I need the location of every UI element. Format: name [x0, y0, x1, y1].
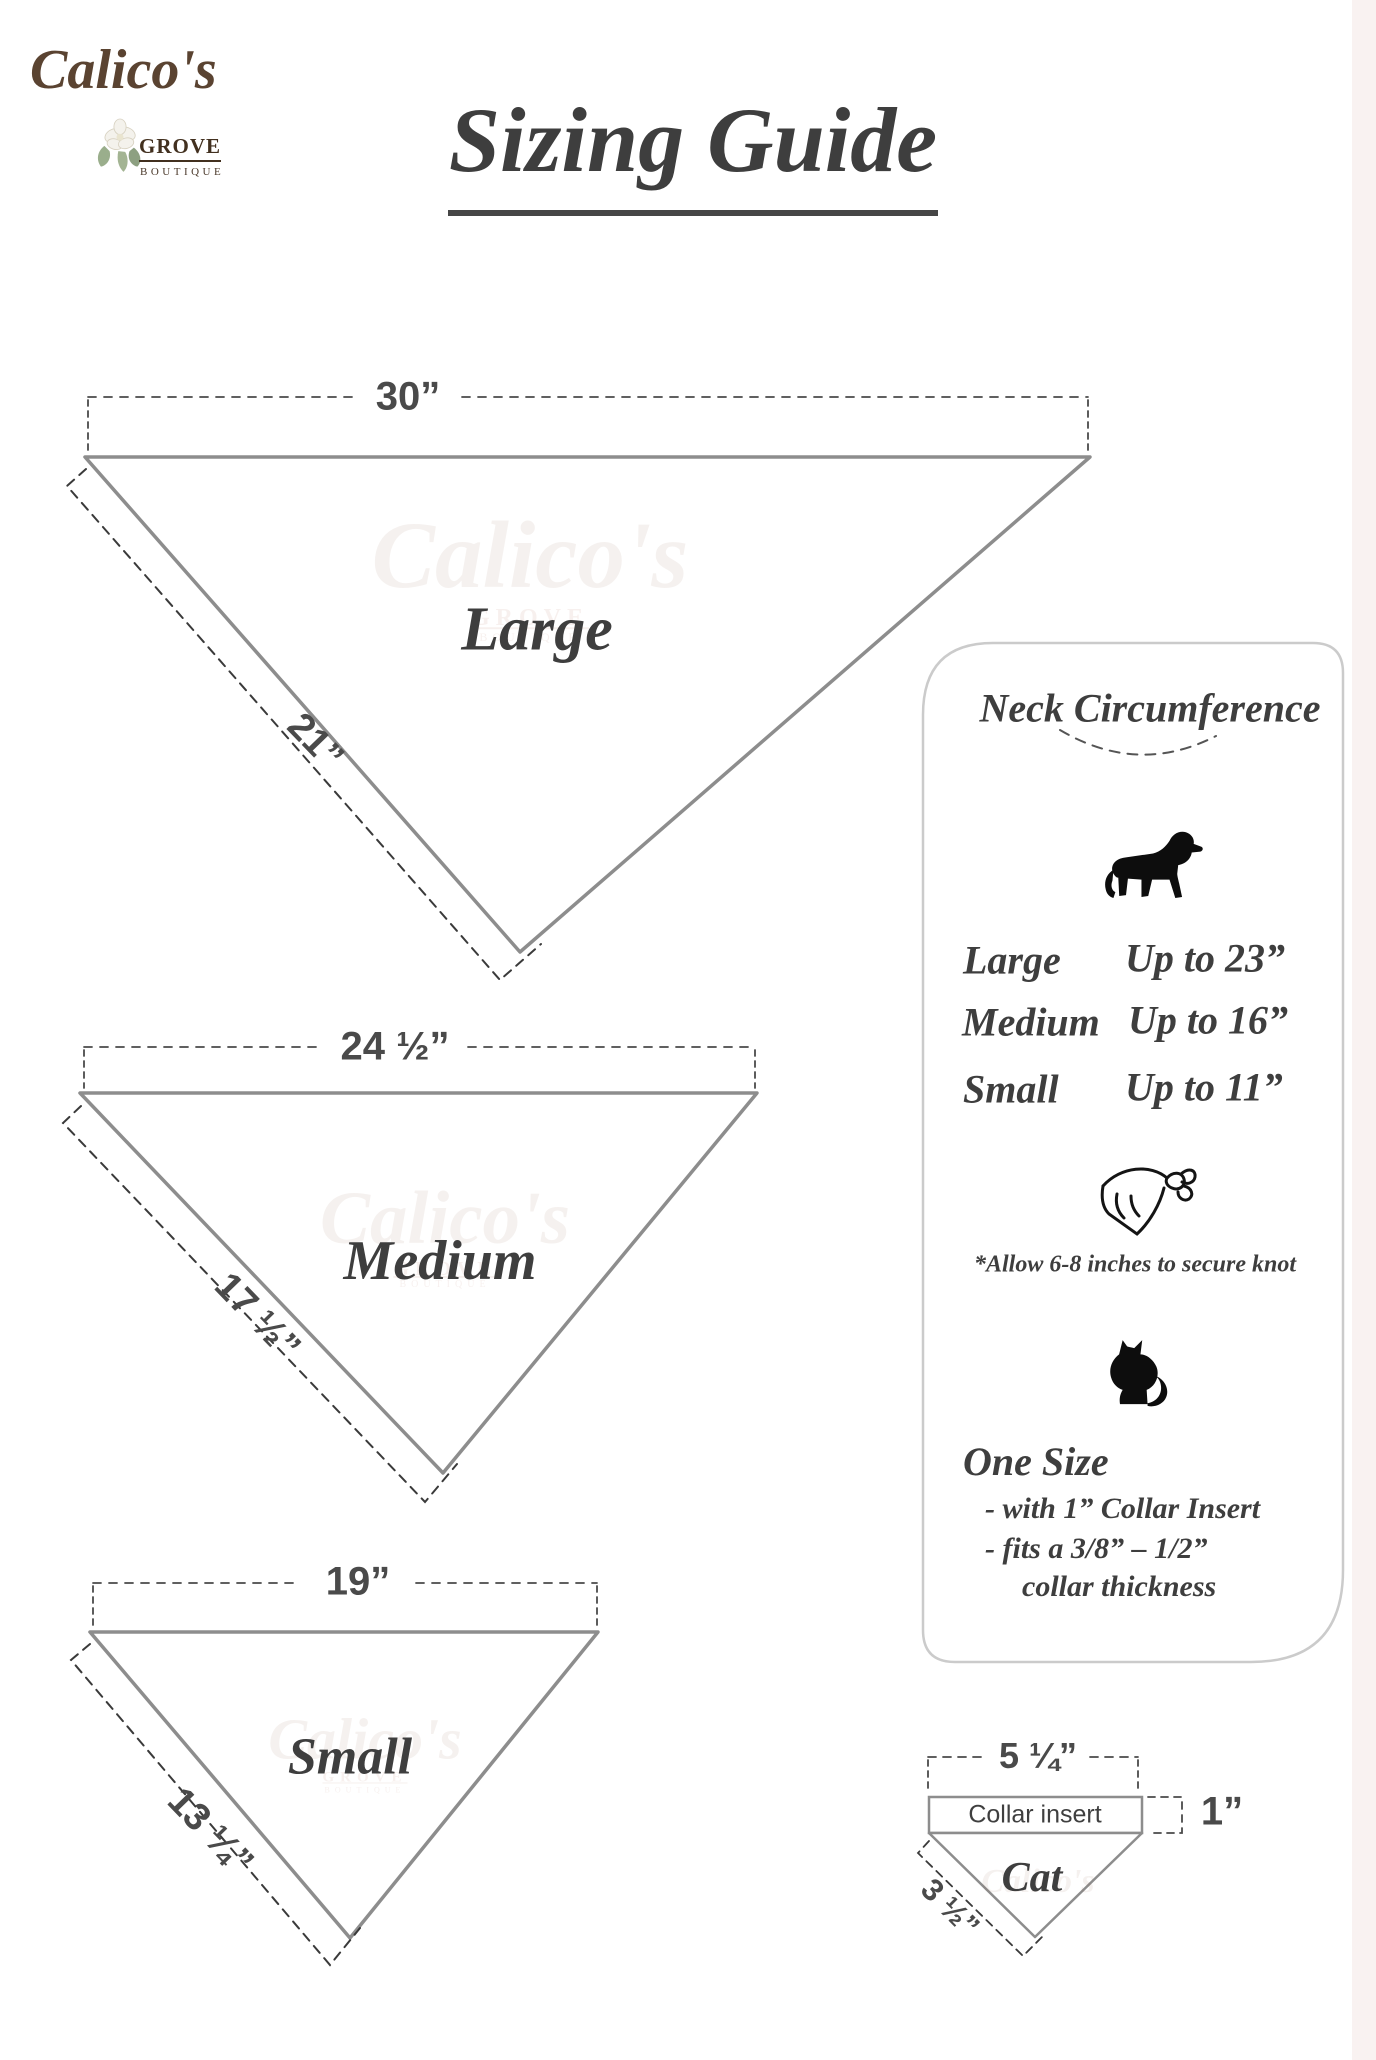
- panel-row-small-size: Small: [963, 1066, 1059, 1113]
- one-size-line3: collar thickness: [1022, 1570, 1216, 1604]
- medium-width-dimension: 24 ½”: [341, 1025, 450, 1070]
- bandana-icon: [1093, 1156, 1199, 1244]
- brand-grove-label: GROVE: [139, 134, 221, 162]
- one-size-line1: - with 1” Collar Insert: [985, 1492, 1260, 1526]
- panel-row-small-value: Up to 11”: [1125, 1064, 1283, 1111]
- small-size-label: Small: [288, 1728, 412, 1787]
- panel-row-large-value: Up to 23”: [1125, 935, 1285, 982]
- collar-insert-label: Collar insert: [968, 1801, 1101, 1830]
- brand-boutique-label: BOUTIQUE: [140, 166, 224, 178]
- sizing-guide-page: Calico's GROVE BOUTIQUE Calico's GROVE B…: [0, 0, 1376, 2060]
- large-size-label: Large: [461, 595, 613, 666]
- panel-row-large-size: Large: [963, 937, 1061, 984]
- knot-allowance-note: *Allow 6-8 inches to secure knot: [974, 1252, 1296, 1279]
- panel-row-medium-value: Up to 16”: [1128, 997, 1288, 1044]
- brand-script-name: Calico's: [30, 38, 217, 102]
- cat-icon: [1096, 1331, 1176, 1415]
- one-size-heading: One Size: [963, 1438, 1109, 1485]
- dog-icon: [1097, 823, 1213, 913]
- large-width-dimension: 30”: [376, 375, 441, 420]
- panel-title: Neck Circumference: [979, 685, 1320, 732]
- cat-height-dimension: 1”: [1201, 1790, 1243, 1835]
- panel-row-medium-size: Medium: [962, 999, 1100, 1046]
- cat-width-dimension: 5 ¼”: [999, 1735, 1077, 1777]
- small-width-dimension: 19”: [326, 1560, 391, 1605]
- cat-size-label: Cat: [1002, 1854, 1063, 1902]
- one-size-line2: - fits a 3/8” – 1/2”: [985, 1532, 1208, 1566]
- medium-size-label: Medium: [344, 1229, 537, 1293]
- title-underline: [448, 210, 938, 216]
- page-title: Sizing Guide: [449, 87, 937, 193]
